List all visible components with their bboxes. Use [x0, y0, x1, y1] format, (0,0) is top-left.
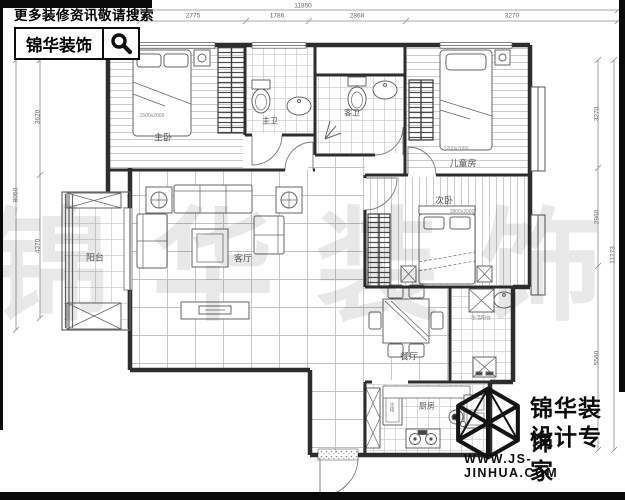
brand-website: WWW.JS-JINHUA.COM	[464, 452, 625, 480]
nightstand	[495, 50, 510, 65]
toilet-icon	[252, 80, 270, 113]
kids-bed	[440, 50, 492, 150]
stove-icon	[406, 429, 440, 448]
sink-icon	[373, 81, 397, 99]
entry-threshold	[318, 449, 358, 460]
coffee-table	[192, 229, 228, 267]
wardrobe	[409, 80, 433, 140]
hall-cabinet	[366, 388, 380, 448]
second-bed	[419, 206, 475, 284]
scan-border-left	[0, 0, 3, 430]
magnifier-icon	[104, 29, 138, 58]
brand-name: 锦华装饰	[16, 29, 104, 58]
scan-border-right	[619, 0, 625, 392]
brand-tagline: 更多装修资讯敬请搜索	[14, 4, 154, 24]
scan-border-bottom	[0, 492, 625, 500]
brand-header: 更多装修资讯敬请搜索 锦华装饰	[14, 4, 154, 60]
nightstand	[194, 50, 210, 66]
sink-icon	[287, 97, 311, 115]
toilet-icon	[348, 77, 366, 111]
brand-search-box: 锦华装饰	[14, 27, 140, 60]
wardrobe	[218, 47, 245, 133]
wardrobe	[368, 214, 390, 286]
tv-cabinet	[181, 302, 249, 319]
master-bed	[133, 50, 191, 136]
floorplan-page: 锦华装饰	[0, 0, 625, 500]
